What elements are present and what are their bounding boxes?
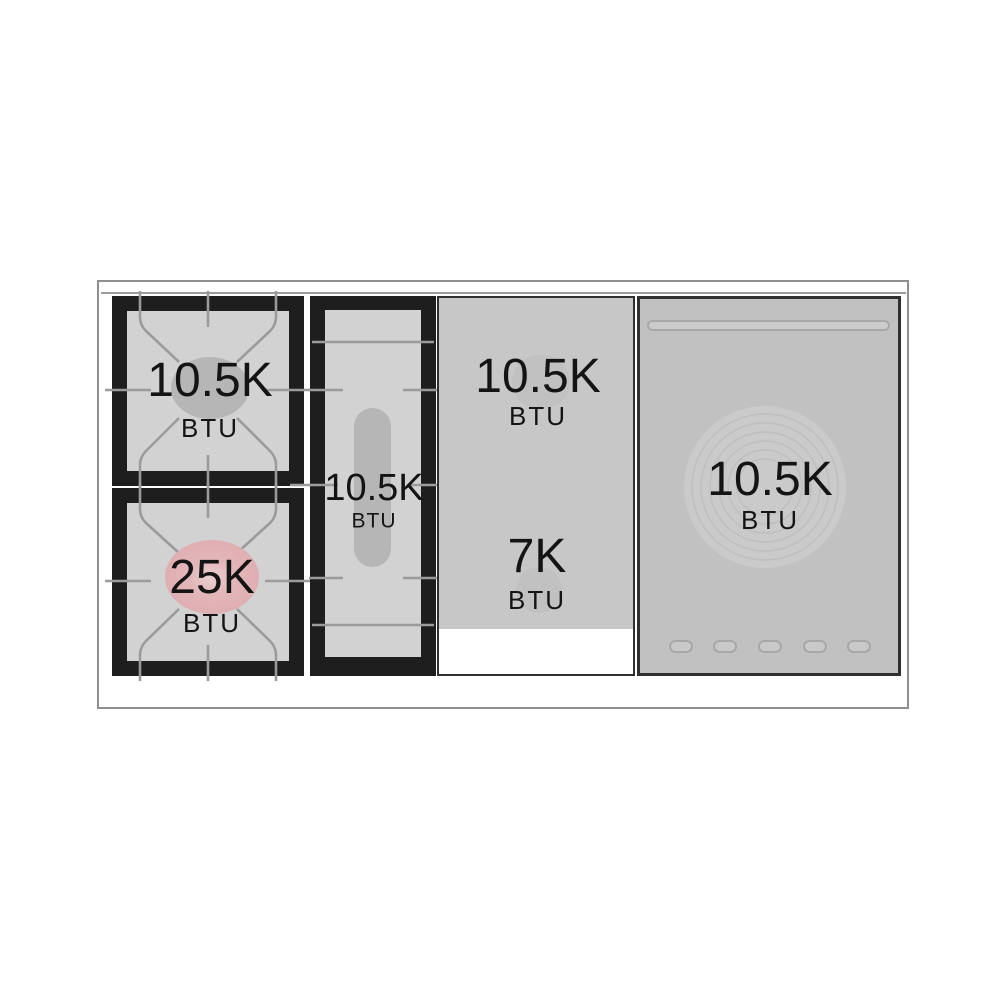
btu-unit-middle-rear: BTU (509, 403, 567, 429)
control-marker-4 (803, 640, 827, 653)
back-trim-line (101, 292, 906, 294)
btu-value-middle-front: 7K (508, 533, 567, 581)
btu-value-left-front: 25K (169, 554, 254, 602)
btu-unit-right-zone: BTU (741, 507, 799, 533)
control-marker-1 (669, 640, 693, 653)
cooktop-diagram: 10.5K BTU 25K BTU 10.5K BTU 10.5K BTU 7K… (0, 0, 1000, 1000)
btu-unit-left-rear: BTU (181, 415, 239, 441)
btu-value-middle-rear: 10.5K (475, 353, 600, 401)
btu-unit-center-oval: BTU (352, 511, 397, 532)
btu-unit-left-front: BTU (183, 610, 241, 636)
vent-slot (647, 320, 890, 331)
front-rail-strip (439, 629, 633, 674)
control-marker-2 (713, 640, 737, 653)
control-marker-5 (847, 640, 871, 653)
btu-value-center-oval: 10.5K (324, 469, 423, 507)
btu-value-left-rear: 10.5K (147, 357, 272, 405)
btu-unit-middle-front: BTU (508, 587, 566, 613)
control-marker-3 (758, 640, 782, 653)
btu-value-right-zone: 10.5K (707, 456, 832, 504)
